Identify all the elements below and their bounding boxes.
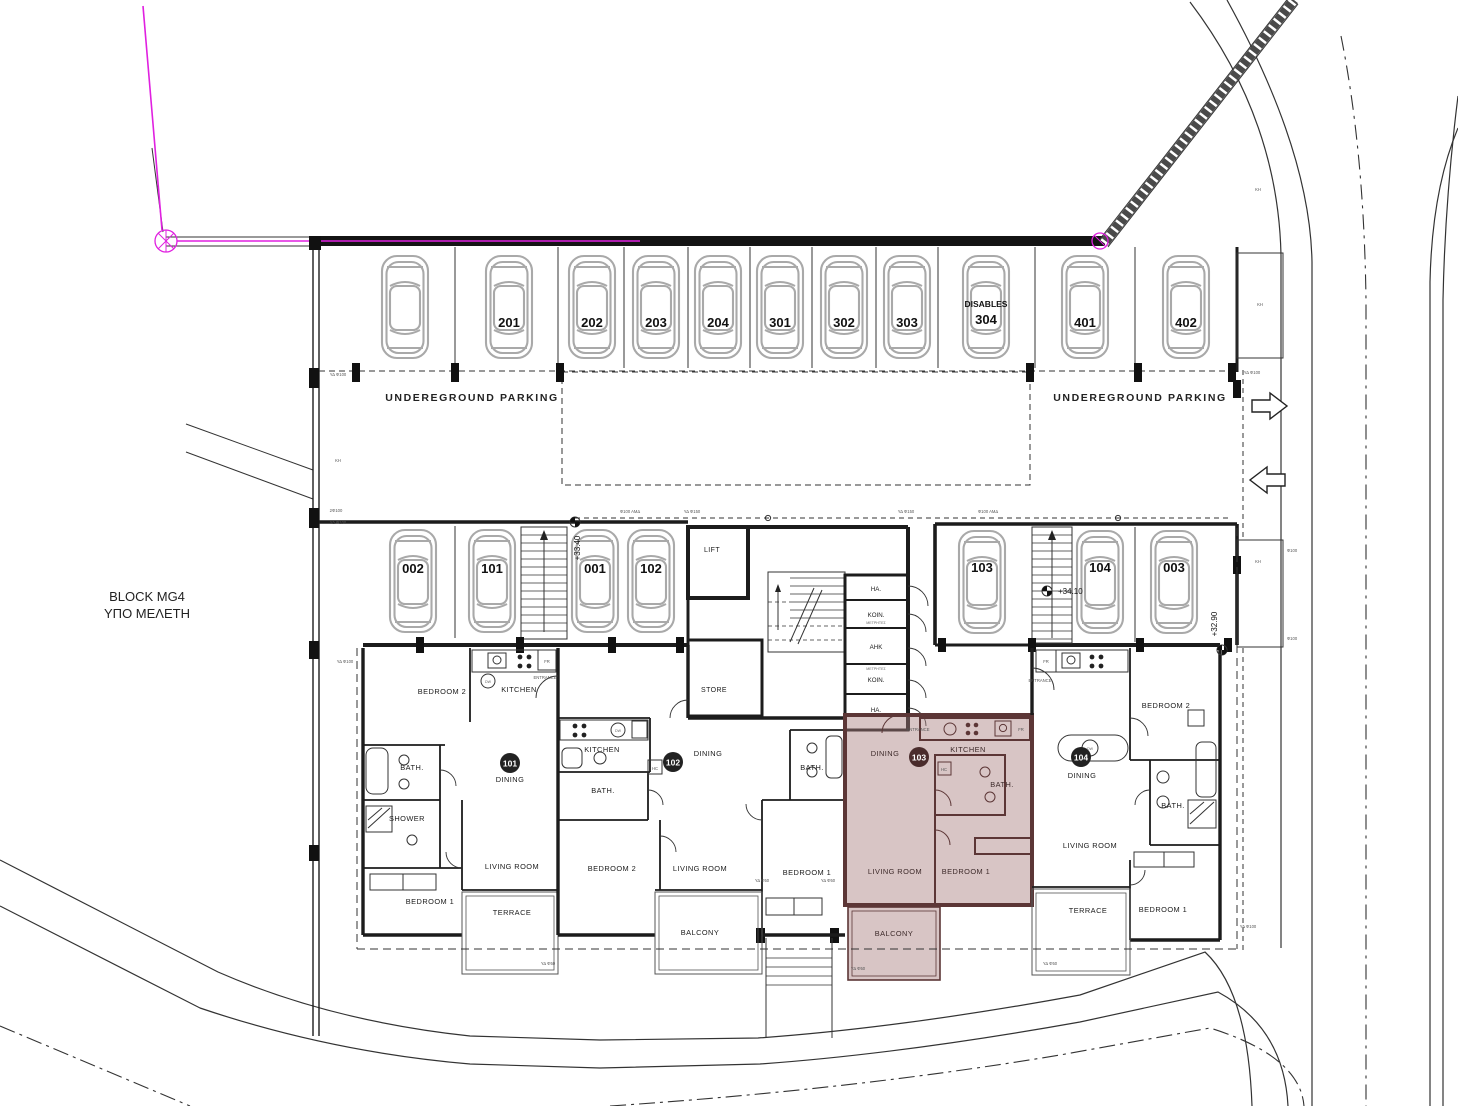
u103-fr-label: FR <box>1018 727 1024 732</box>
parking-area-label-right: UNDEREGROUND PARKING <box>1053 392 1227 404</box>
pipe-label-2: ΥΔ Φ150 <box>684 509 701 514</box>
plot-line-left-2 <box>186 452 313 499</box>
yd100-label-4: ΥΔ Φ100 <box>1244 370 1261 375</box>
cars-mid-row <box>390 530 1197 633</box>
road-centerline-right <box>1341 36 1366 1106</box>
u101-fr-label: FR <box>544 659 550 664</box>
f100-label-2: Φ100 <box>1287 636 1298 641</box>
parking-area-label-left: UNDEREGROUND PARKING <box>385 392 559 404</box>
pipe-label-4: Φ100 ΑΜΔ <box>978 509 999 514</box>
setback-lines <box>357 528 1237 949</box>
u104-terrace-label: TERRACE <box>1069 906 1107 915</box>
u104-number: 104 <box>1074 753 1088 763</box>
stall-disables-label: DISABLES <box>965 299 1008 309</box>
parking-stair-right <box>1032 527 1072 643</box>
stall-304: 304 <box>975 312 997 327</box>
stall-204: 204 <box>707 315 729 330</box>
stall-201: 201 <box>498 315 520 330</box>
u102-bath-label: BATH. <box>591 786 614 795</box>
ramp-zone <box>562 372 1030 485</box>
shaft-kh-mid <box>1237 540 1283 647</box>
u101-entrance-label: ENTRANCE <box>533 675 556 680</box>
stall-302: 302 <box>833 315 855 330</box>
u102-number: 102 <box>666 758 680 768</box>
kh-label-3: ΚΗ <box>1255 559 1261 564</box>
stall-203: 203 <box>645 315 667 330</box>
boundary-magenta-vertical <box>143 6 162 230</box>
f100-label-1: Φ100 <box>1287 548 1298 553</box>
u103-living-label: LIVING ROOM <box>868 867 922 876</box>
floor-plan-canvas: 201 202 203 204 301 302 303 DISABLES 304… <box>0 0 1458 1106</box>
building-core: HA. KOIN. AHK KOIN. HA. ΜΕΤΡΗΤΕΣ ΜΕΤΡΗΤΕ… <box>688 527 928 730</box>
road-edge-bottom-1 <box>0 860 1252 1106</box>
cars-top-row <box>382 256 1209 358</box>
stall-102: 102 <box>640 561 662 576</box>
u101-terrace-label: TERRACE <box>493 908 531 917</box>
u102-bath2-label: BATH. <box>800 763 823 772</box>
yd100-label-3: ΥΔ Φ100 <box>337 659 354 664</box>
cell-koin-2: KOIN. <box>868 677 885 684</box>
stall-402: 402 <box>1175 315 1197 330</box>
level-mid-stair: +33.40 <box>573 535 582 560</box>
u104-entrance-label: ENTRANCE <box>1028 678 1051 683</box>
ramp-arrow-left-icon <box>1250 467 1285 493</box>
stall-001: 001 <box>584 561 606 576</box>
annotations: +34.10 +32.90 +33.40 Φ100 ΑΜΔ ΥΔ Φ150 ΥΔ… <box>330 187 1298 971</box>
parking-structure: 201 202 203 204 301 302 303 DISABLES 304… <box>309 236 1287 1036</box>
core-stair <box>768 572 845 652</box>
store-label: STORE <box>701 687 727 694</box>
yd50-label-2: ΥΔ Φ50 <box>851 966 866 971</box>
unit-101: BEDROOM 2 KITCHEN BATH. SHOWER 101 DININ… <box>363 648 558 974</box>
level-right-stair: +34.10 <box>1058 587 1083 596</box>
utility-door-arcs <box>908 586 928 726</box>
plot-line-left-1 <box>186 424 313 470</box>
yd100-label-5: ΥΔ Φ100 <box>1240 924 1257 929</box>
u104-fr-label: FR <box>1043 659 1049 664</box>
u104-dining-label: DINING <box>1068 771 1097 780</box>
yd100-label-1: ΥΔ Φ100 <box>330 372 347 377</box>
block-name: BLOCK MG4 <box>109 589 185 604</box>
stall-101: 101 <box>481 561 503 576</box>
stall-303: 303 <box>896 315 918 330</box>
stall-202: 202 <box>581 315 603 330</box>
yd50-label-3: ΥΔ Φ50 <box>1043 961 1058 966</box>
pipe-label-3: ΥΔ Φ150 <box>898 509 915 514</box>
stall-301: 301 <box>769 315 791 330</box>
u103-balcony-label: BALCONY <box>875 929 913 938</box>
cell-ahk: AHK <box>870 644 884 651</box>
u103-hc-label: HC <box>941 767 947 772</box>
cell-ha-2: HA. <box>871 707 882 714</box>
stall-104: 104 <box>1089 560 1111 575</box>
u101-kitchen-label: KITCHEN <box>501 685 537 694</box>
u104-living-label: LIVING ROOM <box>1063 841 1117 850</box>
lift-shaft <box>688 527 748 598</box>
kh-label-4: ΚΗ <box>335 458 341 463</box>
cell-ha-1: HA. <box>871 586 882 593</box>
u103-dining-label: DINING <box>871 749 900 758</box>
pipe-label-1: Φ100 ΑΜΔ <box>620 509 641 514</box>
u103-bath-label: BATH. <box>990 780 1013 789</box>
u102-bedroom1-label: BEDROOM 1 <box>783 868 831 877</box>
block-status: ΥΠΟ ΜΕΛΕΤΗ <box>104 606 190 621</box>
store-room <box>688 640 762 716</box>
u102-balcony-label: BALCONY <box>681 928 719 937</box>
stall-002: 002 <box>402 561 424 576</box>
road-edge-3 <box>1443 96 1458 1106</box>
walkway <box>766 938 832 1038</box>
u101-dining-label: DINING <box>496 775 525 784</box>
roads <box>0 0 1458 1106</box>
meters-label-1: ΜΕΤΡΗΤΕΣ <box>866 621 886 625</box>
site-boundary <box>143 0 1298 252</box>
unit-102: KITCHEN BATH. BEDROOM 2 102 DINING LIVIN… <box>558 645 845 974</box>
u102-dining-label: DINING <box>694 749 723 758</box>
kh-label-2: ΚΗ <box>1257 302 1263 307</box>
x2f100-label: 2Φ100 <box>330 508 343 513</box>
u101-dw-label: DW <box>485 680 492 684</box>
unit-103-highlighted: DINING 103 KITCHEN BATH. LIVING ROOM BED… <box>845 715 1032 980</box>
floor-plan-drawing: 201 202 203 204 301 302 303 DISABLES 304… <box>0 0 1458 1106</box>
u104-bath-label: BATH. <box>1161 801 1184 810</box>
u102-dw-label: DW <box>615 729 622 733</box>
boundary-wall-edge-1 <box>1108 4 1298 247</box>
u101-bedroom2-label: BEDROOM 2 <box>418 687 466 696</box>
stall-003: 003 <box>1163 560 1185 575</box>
stall-401: 401 <box>1074 315 1096 330</box>
u104-dw-label: DW <box>1087 747 1094 751</box>
block-label: BLOCK MG4 ΥΠΟ ΜΕΛΕΤΗ <box>104 589 190 621</box>
kh-label-1: ΚΗ <box>1255 187 1261 192</box>
u103-entrance-label: ENTRANCE <box>906 727 929 732</box>
unit-104: BEDROOM 2 104 DINING BATH. LIVING ROOM T… <box>1028 648 1220 975</box>
u102-kitchen-label: KITCHEN <box>584 745 620 754</box>
u102-living-label: LIVING ROOM <box>673 864 727 873</box>
stall-103: 103 <box>971 560 993 575</box>
u103-number: 103 <box>912 753 926 763</box>
utility-cells: HA. KOIN. AHK KOIN. HA. ΜΕΤΡΗΤΕΣ ΜΕΤΡΗΤΕ… <box>845 575 928 730</box>
u102-hc-label: HC <box>652 766 658 771</box>
u101-bedroom1-label: BEDROOM 1 <box>406 897 454 906</box>
u103-bedroom1-label: BEDROOM 1 <box>942 867 990 876</box>
u101-number: 101 <box>503 759 517 769</box>
lift-label: LIFT <box>704 547 720 554</box>
wall-piers <box>309 236 1241 943</box>
u104-bedroom2-label: BEDROOM 2 <box>1142 701 1190 710</box>
meters-label-2: ΜΕΤΡΗΤΕΣ <box>866 667 886 671</box>
u103-kitchen-label: KITCHEN <box>950 745 986 754</box>
yd50-label-5: ΥΔ Φ50 <box>821 878 836 883</box>
u104-bedroom1-label: BEDROOM 1 <box>1139 905 1187 914</box>
u102-bedroom2-label: BEDROOM 2 <box>588 864 636 873</box>
u101-shower-label: SHOWER <box>389 814 425 823</box>
yd50-label-1: ΥΔ Φ50 <box>541 961 556 966</box>
u101-living-label: LIVING ROOM <box>485 862 539 871</box>
cell-koin-1: KOIN. <box>868 612 885 619</box>
yd50-label-4: ΥΔ Φ50 <box>755 878 770 883</box>
u101-bath-label: BATH. <box>400 763 423 772</box>
parking-stair-left <box>521 527 567 639</box>
road-centerline-bottom <box>0 1026 1304 1106</box>
ramp-arrow-right-icon <box>1252 393 1287 419</box>
level-right-edge: +32.90 <box>1210 611 1219 636</box>
yd100-label-2: ΥΔ Φ100 <box>330 520 347 525</box>
